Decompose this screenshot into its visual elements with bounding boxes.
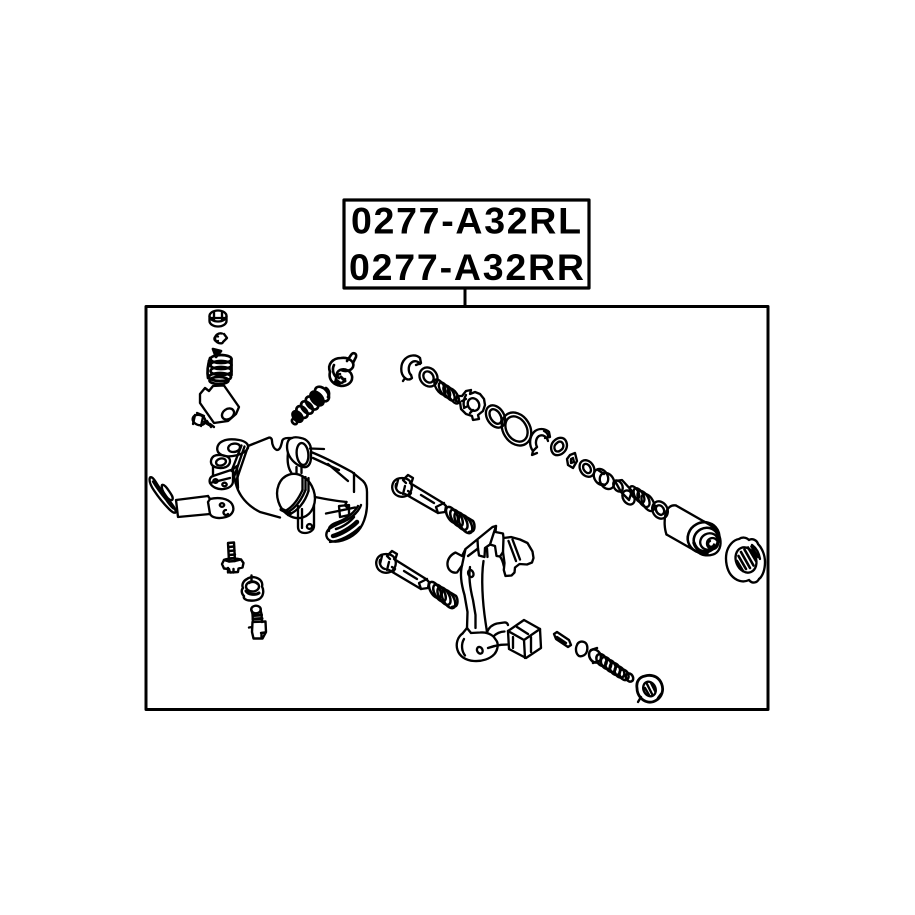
svg-text:0277-A32RR: 0277-A32RR [349, 246, 584, 288]
svg-text:0277-A32RL: 0277-A32RL [351, 200, 581, 242]
